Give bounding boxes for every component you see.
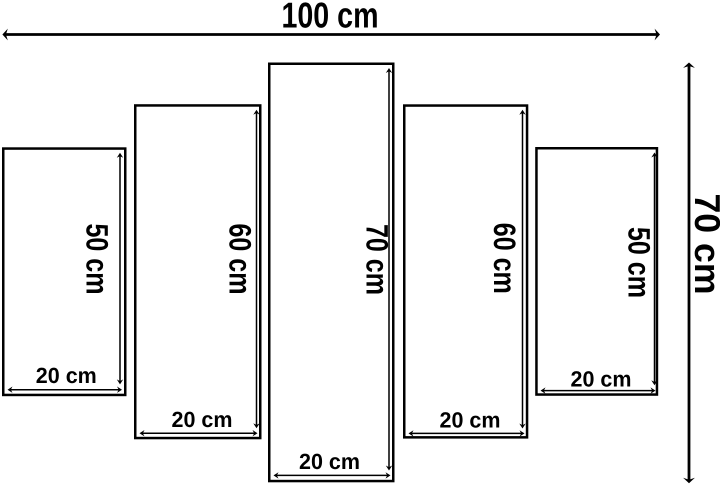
svg-text:20 cm: 20 cm <box>571 366 632 391</box>
svg-text:70 cm: 70 cm <box>687 194 720 295</box>
svg-text:70 cm: 70 cm <box>359 224 394 295</box>
svg-text:20 cm: 20 cm <box>36 363 97 388</box>
svg-text:60 cm: 60 cm <box>487 223 522 294</box>
svg-text:20 cm: 20 cm <box>299 449 360 474</box>
svg-text:20 cm: 20 cm <box>172 407 233 432</box>
svg-text:20 cm: 20 cm <box>440 407 501 432</box>
svg-text:50 cm: 50 cm <box>621 227 656 298</box>
svg-text:100 cm: 100 cm <box>282 0 379 36</box>
svg-text:50 cm: 50 cm <box>79 224 114 295</box>
svg-text:60 cm: 60 cm <box>223 224 258 295</box>
